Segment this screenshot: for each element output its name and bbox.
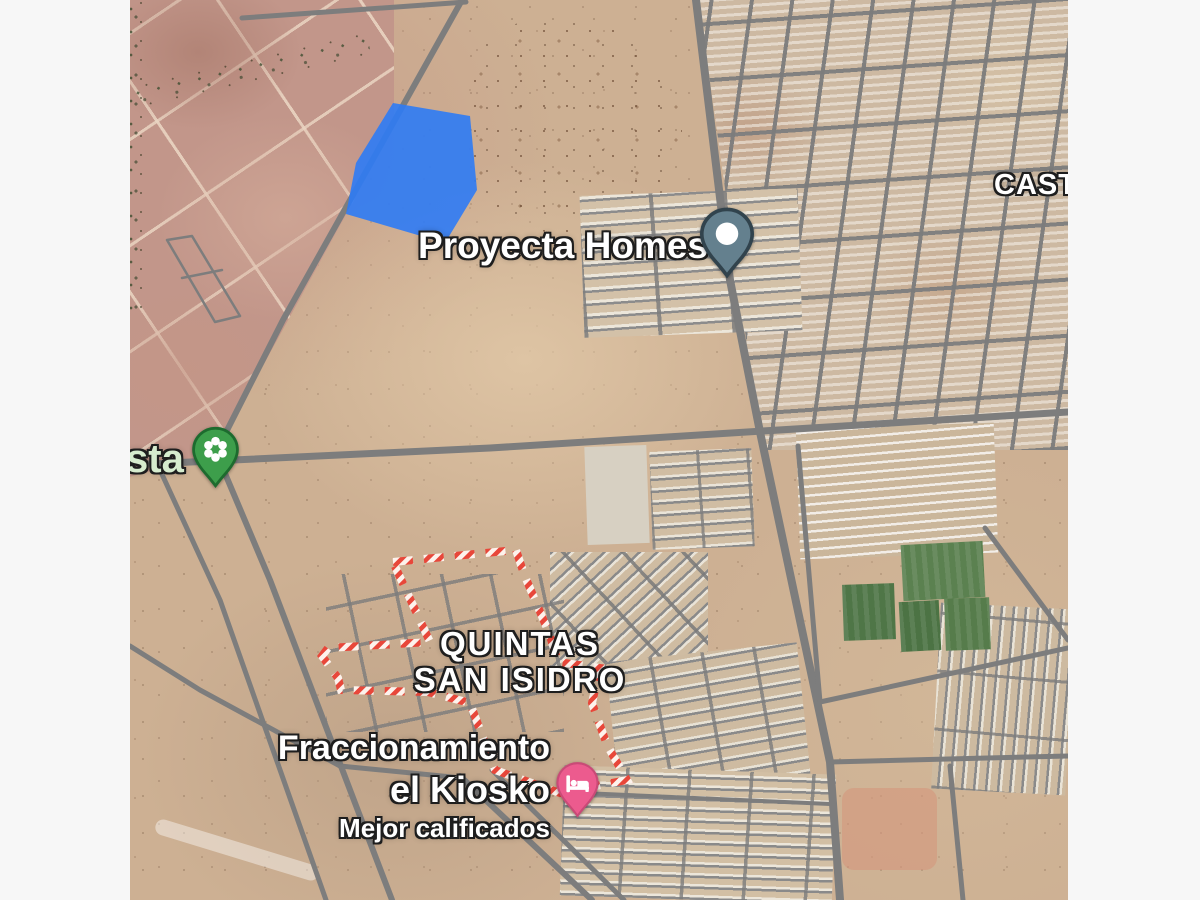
hotel-label-line2: el Kiosko [278, 771, 550, 810]
poi-label-fraccionamiento-el-kiosko[interactable]: Fraccionamiento el Kiosko Mejor califica… [278, 730, 550, 842]
hotel-label-line1: Fraccionamiento [278, 730, 550, 767]
poi-label-sta-truncated[interactable]: sta [130, 438, 184, 481]
hotel-map-pin[interactable] [556, 756, 599, 823]
satellite-map-canvas[interactable]: Proyecta Homes CAST sta QUINTAS SAN ISID… [130, 0, 1068, 900]
flower-pin-icon [192, 421, 239, 493]
map-vector-overlay [130, 0, 1068, 900]
district-label-line2: SAN ISIDRO [414, 662, 627, 698]
road-network [130, 0, 1068, 900]
hotel-label-subtitle: Mejor calificados [278, 814, 550, 842]
default-poi-pin-icon [700, 207, 754, 278]
bed-pin-icon [556, 756, 599, 823]
highlighted-parcel-polygon[interactable] [346, 103, 477, 243]
proyecta-homes-map-pin[interactable] [700, 207, 754, 278]
poi-label-proyecta-homes[interactable]: Proyecta Homes [418, 226, 708, 266]
park-map-pin[interactable] [192, 421, 239, 493]
district-label-cast-truncated[interactable]: CAST [994, 170, 1068, 201]
screenshot-stage: Proyecta Homes CAST sta QUINTAS SAN ISID… [0, 0, 1200, 900]
district-label-quintas-san-isidro[interactable]: QUINTAS SAN ISIDRO [414, 626, 627, 697]
district-label-line1: QUINTAS [414, 626, 627, 662]
